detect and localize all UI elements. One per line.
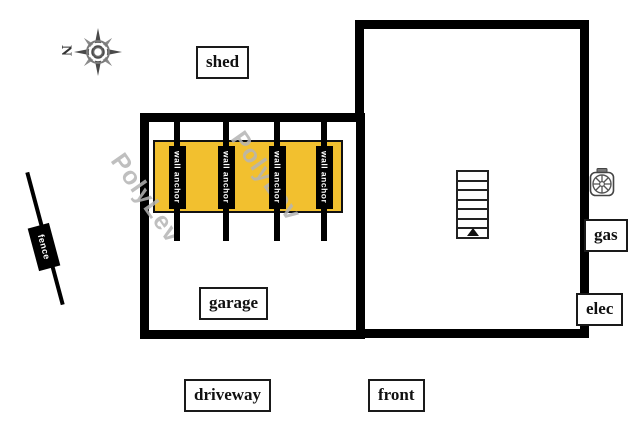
stairs-direction-arrow-icon [467, 228, 479, 236]
driveway-label: driveway [184, 379, 271, 412]
wall-anchor-label: wall anchor [169, 146, 186, 209]
front-label: front [368, 379, 425, 412]
shed-label: shed [196, 46, 249, 79]
site-plan-diagram: N PolyLev PolyLev wall anchor wall ancho… [0, 0, 640, 430]
wall-anchor-label: wall anchor [269, 146, 286, 209]
staircase [456, 170, 489, 239]
fan-vent-icon [588, 167, 616, 198]
fence-label: fence [28, 223, 61, 271]
gas-meter-label: gas [584, 219, 628, 252]
compass-rose-icon [72, 26, 124, 78]
wall-anchor-label: wall anchor [218, 146, 235, 209]
garage-label: garage [199, 287, 268, 320]
wall-anchor-label: wall anchor [316, 146, 333, 209]
electric-meter-label: elec [576, 293, 623, 326]
